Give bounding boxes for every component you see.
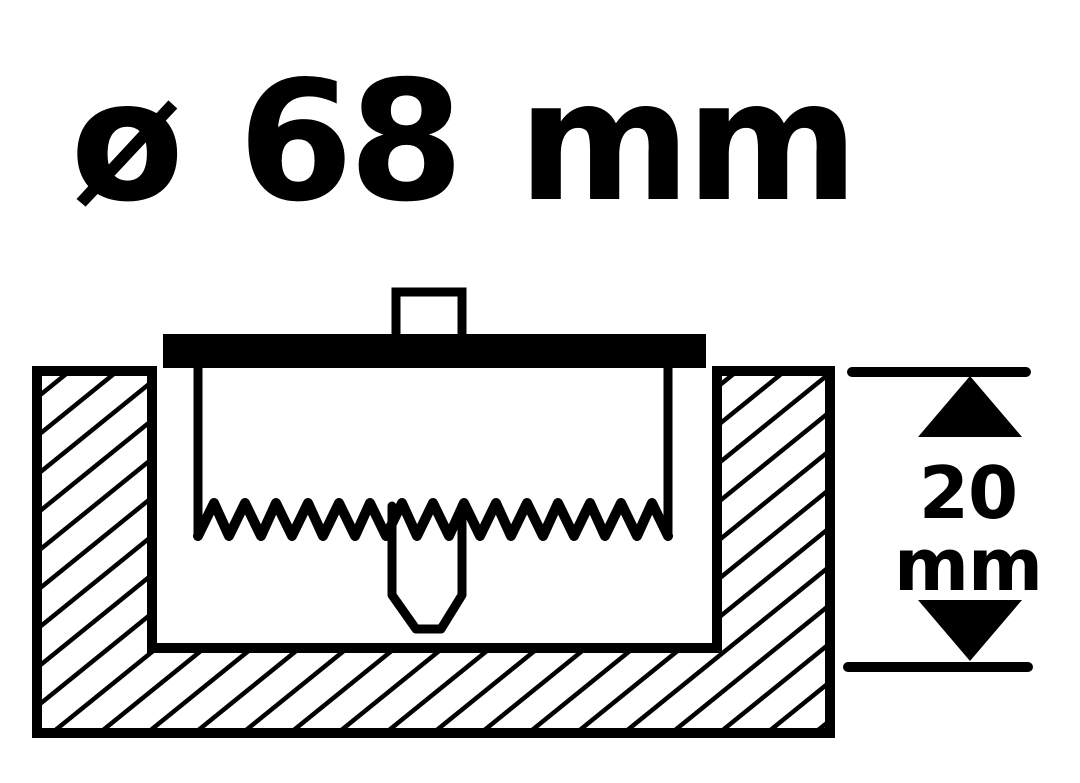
hole-saw-pictogram: ø 68 mm 20 mm — [0, 0, 1080, 783]
hole-saw-cap — [163, 334, 706, 368]
depth-dimension: 20 mm — [848, 372, 1042, 667]
arrow-up-icon — [918, 376, 1022, 437]
cutting-depth-diagram: 20 mm — [0, 0, 1080, 783]
hole-saw — [163, 292, 706, 629]
hole-saw-teeth — [198, 503, 668, 536]
workpiece-cross-section — [37, 371, 830, 733]
arrow-down-icon — [918, 600, 1022, 661]
depth-unit-label: mm — [894, 523, 1042, 607]
